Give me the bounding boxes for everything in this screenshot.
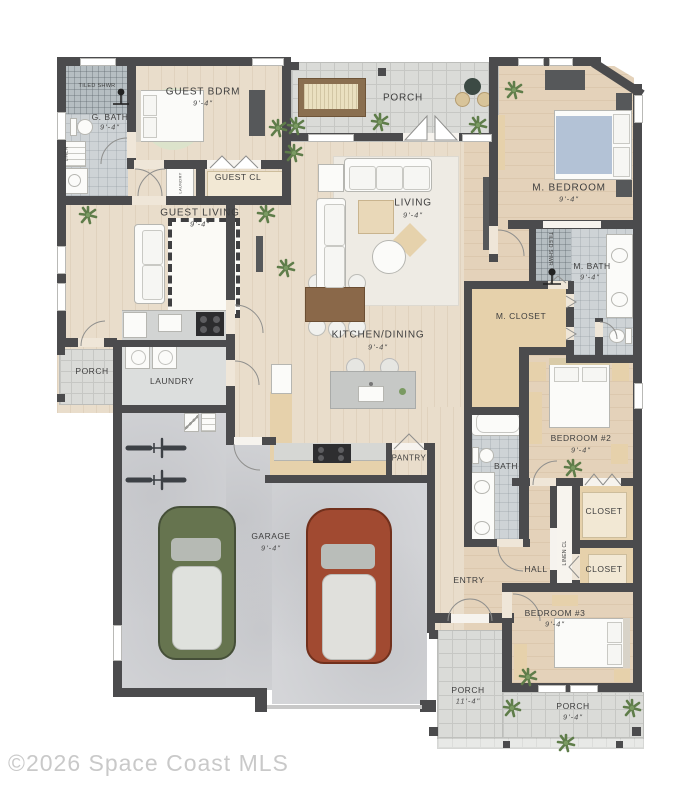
nightstand bbox=[529, 362, 546, 381]
porch-post bbox=[378, 68, 386, 76]
wall bbox=[255, 688, 267, 712]
burner bbox=[338, 447, 344, 453]
nightstand bbox=[612, 362, 629, 381]
label-porch-left: PORCH bbox=[75, 366, 108, 376]
porch-post bbox=[57, 394, 65, 402]
burner bbox=[200, 326, 207, 333]
sofa-cushion bbox=[142, 265, 163, 300]
linen-door bbox=[550, 528, 557, 570]
sliding-door bbox=[543, 221, 601, 228]
door-opening bbox=[489, 226, 498, 254]
burner bbox=[200, 316, 207, 323]
label-closet-1: CLOSET bbox=[585, 506, 622, 516]
burner bbox=[213, 316, 220, 323]
door-opening bbox=[595, 322, 603, 337]
dresser bbox=[528, 392, 542, 444]
porch-post bbox=[429, 727, 438, 736]
sink bbox=[158, 314, 182, 332]
faucet bbox=[369, 382, 373, 386]
kitchen-cabinet bbox=[270, 392, 292, 443]
armchair bbox=[372, 240, 406, 274]
floor-plan: TILED SHWR G. BATH 9'-4" GUEST BDRM 9'-4… bbox=[0, 0, 690, 800]
nightstand bbox=[616, 180, 632, 197]
window bbox=[634, 383, 643, 409]
wall bbox=[113, 688, 265, 697]
dim-bedroom-2: 9'-4" bbox=[571, 446, 591, 455]
door-opening bbox=[502, 592, 512, 618]
sofa-cushion bbox=[403, 166, 430, 190]
label-linen-cl: LINEN CL bbox=[562, 541, 568, 566]
label-garage: GARAGE bbox=[251, 531, 290, 541]
window bbox=[113, 625, 122, 661]
label-hall: HALL bbox=[524, 564, 547, 574]
pillow bbox=[582, 367, 607, 382]
window bbox=[57, 283, 66, 311]
guest-shower-floor bbox=[62, 66, 128, 114]
sink bbox=[611, 292, 628, 307]
storage-box bbox=[201, 413, 216, 432]
porch-post bbox=[57, 347, 65, 355]
dim-guest-living: 9'-4" bbox=[190, 220, 210, 229]
door-opening bbox=[566, 327, 574, 340]
nightstand bbox=[616, 93, 632, 110]
porch-post bbox=[429, 630, 438, 639]
label-guest-living: GUEST LIVING bbox=[160, 208, 239, 219]
nightstand bbox=[614, 669, 630, 682]
sofa-cushion bbox=[324, 204, 345, 246]
chest bbox=[611, 444, 628, 464]
porch-left-floor bbox=[59, 349, 115, 405]
car-green bbox=[158, 506, 236, 660]
door-opening bbox=[226, 300, 235, 334]
door-opening bbox=[403, 133, 459, 141]
garage-door-sill bbox=[267, 705, 422, 709]
sofa-cushion bbox=[349, 166, 376, 190]
bowl-decor bbox=[399, 388, 406, 395]
duvet-blue bbox=[556, 116, 612, 174]
burner bbox=[318, 447, 324, 453]
sink bbox=[474, 521, 490, 535]
wall bbox=[196, 160, 205, 205]
label-m-bedroom: M. BEDROOM bbox=[532, 183, 606, 194]
dining-table bbox=[305, 287, 365, 322]
dim-kitchen-dining: 9'-4" bbox=[368, 343, 388, 352]
porch-post bbox=[503, 741, 510, 748]
wall bbox=[265, 475, 435, 483]
label-tiled-shwr-guest: TILED SHWR bbox=[79, 83, 116, 89]
dim-porch-bottom: 9'-4" bbox=[563, 713, 583, 722]
mini-fridge bbox=[123, 312, 147, 338]
porch-post bbox=[489, 62, 497, 70]
patio-chair bbox=[455, 92, 470, 107]
sink bbox=[474, 480, 490, 494]
side-table bbox=[318, 164, 344, 192]
island-sink bbox=[358, 386, 384, 402]
master-shower-floor bbox=[535, 229, 571, 281]
dim-m-bath: 9'-4" bbox=[580, 273, 600, 282]
bench-weave bbox=[304, 84, 358, 109]
toilet-bowl bbox=[479, 448, 494, 463]
door-opening bbox=[548, 281, 568, 289]
pillow bbox=[607, 622, 622, 643]
toilet bbox=[472, 447, 479, 464]
wall bbox=[113, 405, 231, 413]
wall bbox=[427, 443, 435, 633]
dim-guest-bdrm: 9'-4" bbox=[193, 99, 213, 108]
pillow bbox=[554, 367, 579, 382]
door-opening bbox=[566, 294, 574, 307]
label-porch-top: PORCH bbox=[383, 93, 423, 104]
label-m-bath: M. BATH bbox=[573, 261, 610, 271]
washer-door bbox=[131, 350, 146, 365]
linen-closet-floor bbox=[556, 486, 573, 583]
door-opening bbox=[134, 160, 164, 169]
door-opening bbox=[497, 539, 523, 547]
door-opening bbox=[207, 160, 261, 169]
pillow bbox=[613, 147, 630, 177]
window bbox=[570, 685, 598, 693]
pillow bbox=[143, 117, 157, 138]
window bbox=[462, 134, 492, 142]
dim-living: 9'-4" bbox=[403, 211, 423, 220]
label-porch-entry: PORCH bbox=[451, 685, 484, 695]
window bbox=[538, 685, 566, 693]
sofa-cushion bbox=[376, 166, 403, 190]
sink bbox=[68, 174, 81, 187]
fridge bbox=[271, 364, 292, 394]
label-linen-guest: LINEN bbox=[64, 147, 69, 162]
label-closet-2: CLOSET bbox=[585, 564, 622, 574]
headboard bbox=[623, 618, 630, 668]
pillow bbox=[143, 95, 157, 116]
label-guest-cl: GUEST CL bbox=[215, 172, 261, 182]
label-living: LIVING bbox=[394, 198, 432, 209]
door-opening bbox=[127, 132, 136, 158]
toilet-bowl bbox=[609, 329, 625, 343]
dresser bbox=[552, 595, 578, 606]
dim-g-bath: 9'-4" bbox=[100, 123, 120, 132]
coffee-table bbox=[358, 200, 394, 234]
door-opening bbox=[572, 554, 580, 580]
wall bbox=[566, 355, 633, 363]
label-bedroom-2: BEDROOM #2 bbox=[551, 433, 612, 443]
car-windshield bbox=[321, 544, 375, 569]
porch-post bbox=[616, 741, 623, 748]
window bbox=[252, 58, 284, 66]
door-opening bbox=[392, 443, 424, 450]
door-opening bbox=[530, 478, 556, 486]
label-laundry: LAUNDRY bbox=[150, 376, 194, 386]
label-bedroom-3: BEDROOM #3 bbox=[525, 608, 586, 618]
m-closet-shelves bbox=[466, 345, 523, 409]
label-bath: BATH bbox=[494, 461, 518, 471]
label-entry: ENTRY bbox=[453, 575, 484, 585]
car-windshield bbox=[171, 538, 221, 561]
dim-porch-entry: 11'-4" bbox=[456, 697, 481, 706]
wall bbox=[502, 583, 633, 592]
window bbox=[80, 58, 116, 66]
wall bbox=[420, 700, 436, 712]
burner bbox=[318, 455, 324, 461]
window bbox=[308, 134, 354, 142]
porch-step-strip bbox=[437, 737, 644, 749]
label-porch-bottom: PORCH bbox=[556, 701, 589, 711]
wall bbox=[489, 57, 601, 66]
label-pantry: PANTRY bbox=[392, 454, 427, 463]
car-roof bbox=[322, 574, 376, 660]
toilet bbox=[70, 118, 77, 136]
watermark: ©2026 Space Coast MLS bbox=[8, 750, 289, 777]
window bbox=[634, 95, 643, 123]
porch-post bbox=[291, 62, 299, 70]
door-opening bbox=[78, 338, 104, 347]
label-laundry-closet: LAUNDRY bbox=[178, 172, 183, 193]
porch-post bbox=[632, 727, 641, 736]
wall bbox=[572, 540, 633, 548]
car-red bbox=[306, 508, 392, 664]
label-kitchen-dining: KITCHEN/DINING bbox=[332, 330, 425, 341]
door-opening bbox=[132, 196, 166, 205]
dresser bbox=[514, 644, 527, 680]
wall bbox=[62, 196, 291, 205]
label-guest-bdrm: GUEST BDRM bbox=[166, 87, 241, 98]
pillow bbox=[607, 644, 622, 665]
wall bbox=[113, 340, 233, 347]
dim-m-bedroom: 9'-4" bbox=[559, 195, 579, 204]
pillow bbox=[613, 114, 630, 144]
tv-console bbox=[256, 236, 263, 272]
dresser bbox=[545, 70, 585, 90]
label-g-bath: G. BATH bbox=[92, 112, 129, 122]
burner bbox=[213, 326, 220, 333]
sofa-cushion bbox=[324, 246, 345, 288]
burner bbox=[338, 455, 344, 461]
sofa-cushion bbox=[142, 230, 163, 265]
label-m-closet: M. CLOSET bbox=[496, 311, 546, 321]
cooktop bbox=[196, 312, 224, 336]
wall bbox=[529, 229, 536, 283]
door-opening bbox=[226, 360, 235, 386]
wall bbox=[282, 57, 291, 141]
bathtub-inner bbox=[476, 412, 520, 433]
dresser bbox=[249, 90, 265, 136]
label-tiled-shwr-master: TILED SHWR bbox=[547, 232, 553, 266]
window bbox=[549, 58, 573, 66]
window bbox=[57, 246, 66, 274]
wall bbox=[427, 613, 451, 623]
dryer-door bbox=[158, 350, 173, 365]
door-opening bbox=[234, 437, 262, 445]
car-roof bbox=[172, 566, 222, 650]
dim-garage: 9'-4" bbox=[261, 544, 281, 553]
door-opening bbox=[451, 614, 489, 623]
window bbox=[57, 112, 66, 140]
storage-box bbox=[184, 413, 199, 432]
toilet bbox=[625, 328, 632, 344]
sink bbox=[611, 248, 628, 263]
wall bbox=[519, 347, 529, 547]
window bbox=[518, 58, 544, 66]
dim-bedroom-3: 9'-4" bbox=[545, 620, 565, 629]
door-opening bbox=[583, 478, 621, 486]
